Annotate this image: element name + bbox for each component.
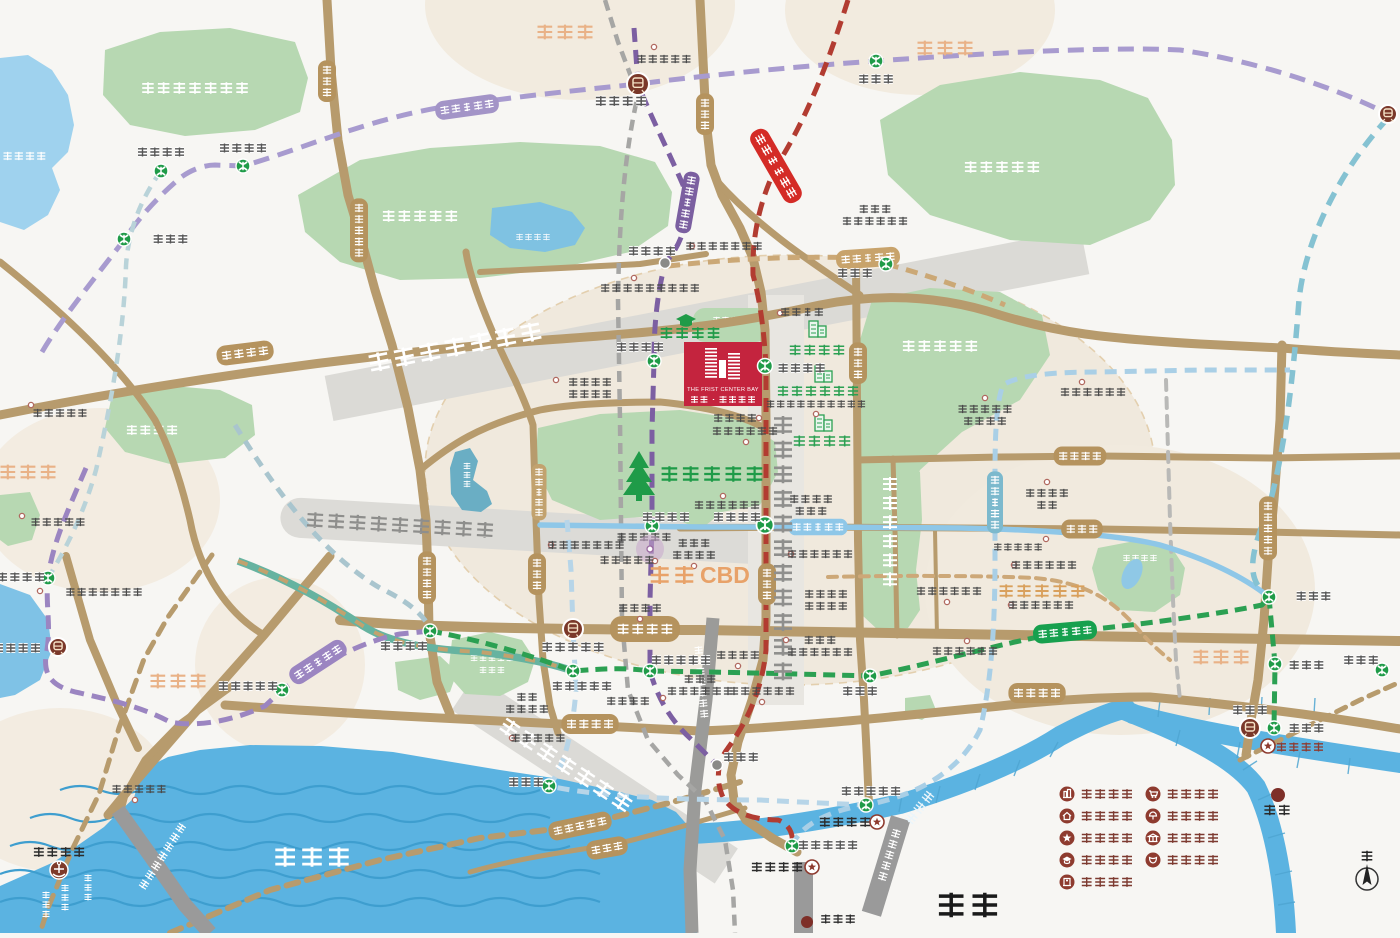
- svg-text:CBD: CBD: [700, 562, 750, 588]
- svg-text:THE FRIST CENTER BAY: THE FRIST CENTER BAY: [687, 387, 759, 393]
